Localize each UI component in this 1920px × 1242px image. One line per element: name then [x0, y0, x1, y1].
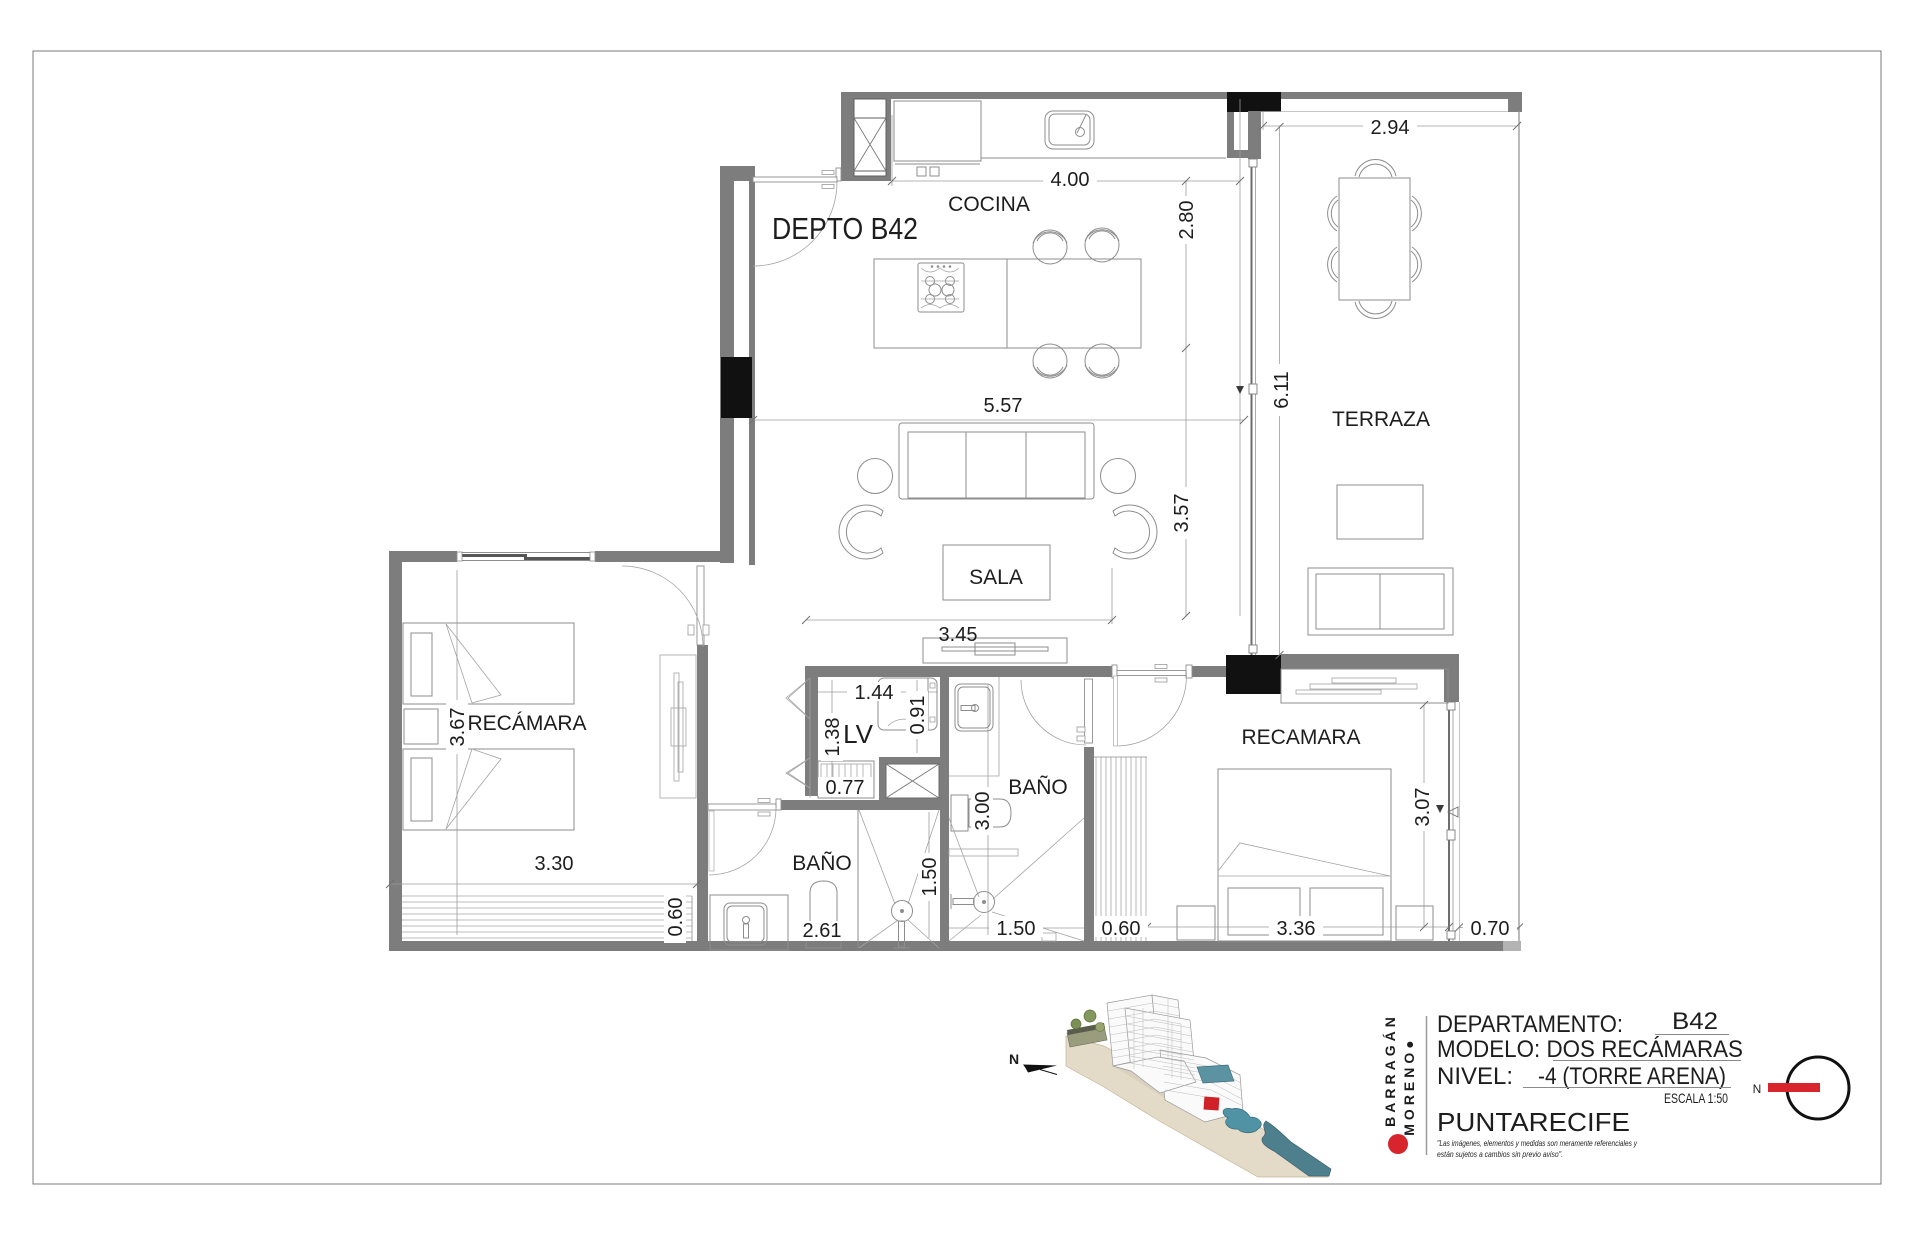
svg-text:DEPTO B42: DEPTO B42 [772, 211, 918, 246]
svg-text:0.77: 0.77 [826, 777, 865, 799]
svg-text:MORENO●: MORENO● [1401, 1036, 1417, 1135]
svg-text:1.38: 1.38 [822, 718, 844, 757]
svg-text:0.60: 0.60 [665, 898, 687, 937]
svg-text:COCINA: COCINA [948, 193, 1030, 216]
svg-text:NIVEL:: NIVEL: [1437, 1063, 1513, 1090]
svg-text:0.60: 0.60 [1102, 918, 1141, 940]
svg-text:PUNTARECIFE: PUNTARECIFE [1437, 1107, 1630, 1137]
svg-text:3.57: 3.57 [1171, 494, 1193, 533]
svg-text:3.67: 3.67 [447, 708, 469, 747]
svg-text:LV: LV [843, 719, 874, 749]
svg-text:4.00: 4.00 [1051, 169, 1090, 191]
svg-text:2.94: 2.94 [1371, 117, 1410, 139]
svg-text:B42: B42 [1672, 1008, 1718, 1035]
svg-text:-4 (TORRE ARENA): -4 (TORRE ARENA) [1538, 1063, 1726, 1090]
svg-text:3.45: 3.45 [939, 624, 978, 646]
svg-text:están sujetos a cambios sin pr: están sujetos a cambios sin previo aviso… [1437, 1149, 1563, 1159]
svg-text:5.57: 5.57 [984, 395, 1023, 417]
svg-text:N: N [1009, 1051, 1019, 1067]
svg-text:RECAMARA: RECAMARA [1241, 726, 1360, 749]
svg-text:MODELO: DOS RECÁMARAS: MODELO: DOS RECÁMARAS [1437, 1036, 1743, 1063]
svg-text:0.70: 0.70 [1471, 918, 1510, 940]
svg-text:SALA: SALA [969, 566, 1023, 589]
svg-text:3.36: 3.36 [1277, 918, 1316, 940]
svg-text:6.11: 6.11 [1271, 371, 1293, 408]
svg-text:1.50: 1.50 [919, 858, 941, 897]
svg-text:"Las imágenes, elementos y med: "Las imágenes, elementos y medidas son m… [1437, 1138, 1638, 1148]
svg-text:2.61: 2.61 [803, 920, 842, 942]
svg-text:1.44: 1.44 [855, 682, 894, 704]
svg-text:3.30: 3.30 [535, 853, 574, 875]
svg-text:2.80: 2.80 [1176, 201, 1198, 240]
svg-text:N: N [1753, 1082, 1762, 1096]
svg-text:DEPARTAMENTO:: DEPARTAMENTO: [1437, 1011, 1623, 1038]
svg-text:ESCALA 1:50: ESCALA 1:50 [1664, 1090, 1728, 1106]
svg-text:BARRAGÁN: BARRAGÁN [1382, 1013, 1398, 1127]
svg-text:0.91: 0.91 [907, 696, 929, 735]
svg-text:TERRAZA: TERRAZA [1332, 408, 1430, 431]
svg-text:RECÁMARA: RECÁMARA [467, 712, 586, 735]
svg-text:3.00: 3.00 [972, 792, 994, 831]
svg-text:BAÑO: BAÑO [792, 851, 852, 875]
svg-text:3.07: 3.07 [1412, 788, 1434, 827]
svg-text:BAÑO: BAÑO [1008, 775, 1068, 799]
svg-text:1.50: 1.50 [997, 918, 1036, 940]
